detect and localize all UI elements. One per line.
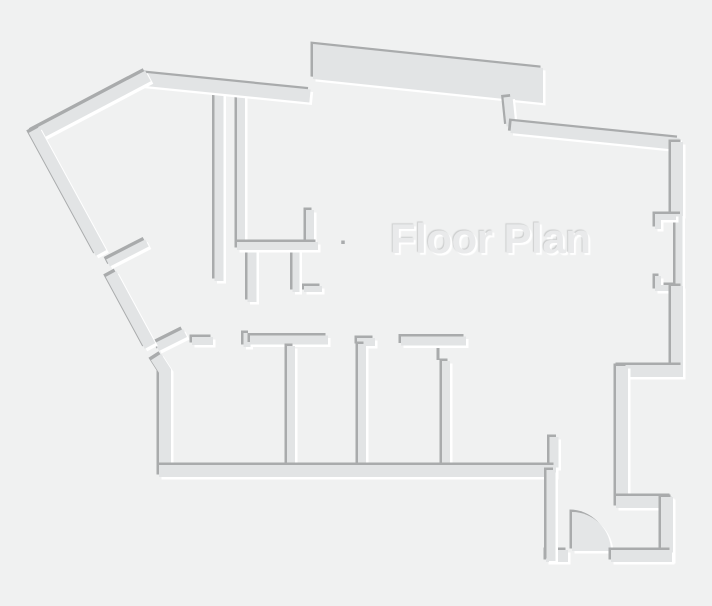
- exterior-jog: [508, 97, 511, 126]
- floor-plan-page: Floor Plan: [0, 0, 712, 606]
- floor-plan-canvas: Floor Plan: [0, 0, 712, 606]
- floor-plan-title: Floor Plan: [390, 215, 590, 262]
- floor-background: [0, 0, 712, 606]
